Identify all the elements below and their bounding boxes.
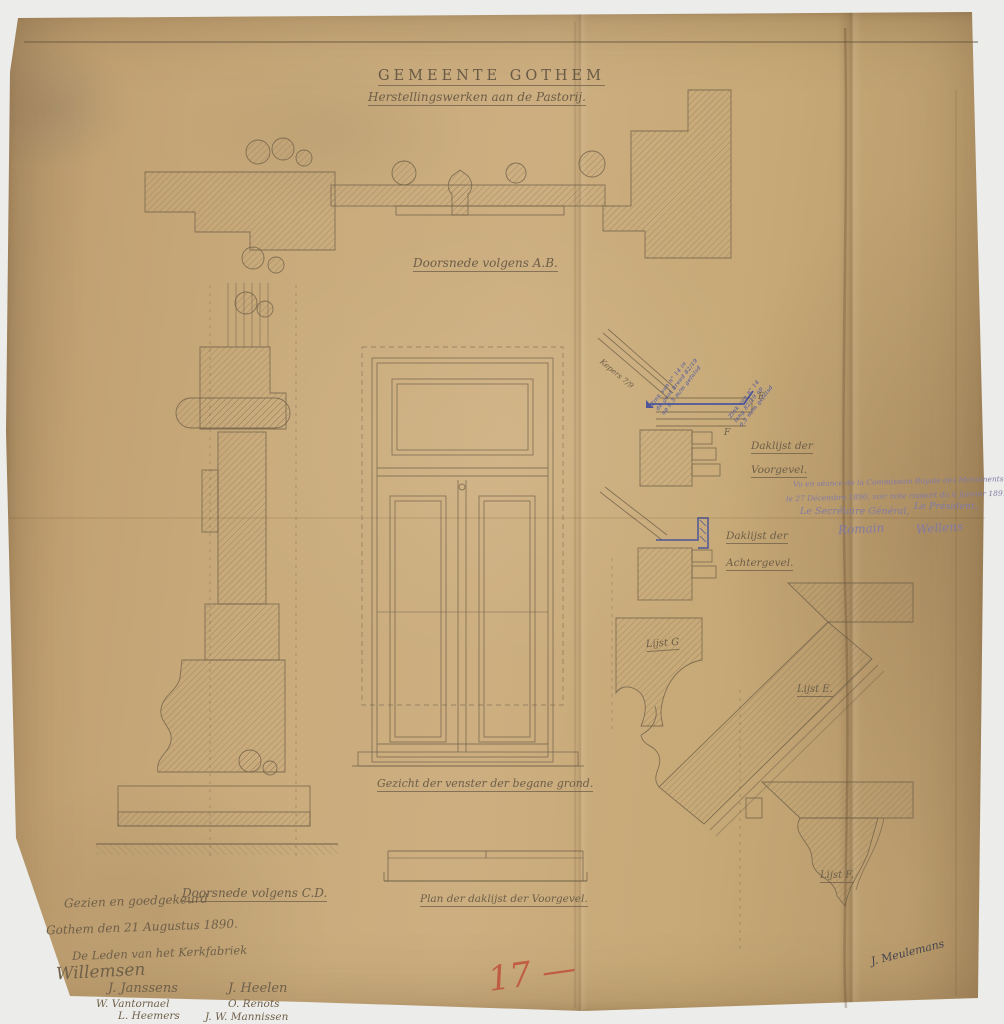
signature-row1-left: J. Janssens (108, 981, 178, 996)
label-cornice-front-2: Voorgevel. (751, 464, 807, 478)
label-cornice-rear-1: Daklijst der (726, 530, 788, 544)
gutter-detail-rear (600, 487, 716, 600)
label-lijst-g: Lijst G (646, 637, 680, 652)
label-cornice-front-1: Daklijst der (751, 440, 813, 454)
signature-row3-left: L. Heemers (118, 1010, 180, 1022)
sheet-subtitle: Herstellingswerken aan de Pastorij. (368, 90, 586, 106)
label-section-ab: Doorsnede volgens A.B. (413, 256, 558, 272)
secretary-signature: Romain (838, 521, 885, 537)
signature-row3-right: J. W. Mannissen (205, 1011, 288, 1023)
label-plan-cornice: Plan der daklijst der Voorgevel. (420, 893, 588, 907)
label-lijst-f: Lijst F. (820, 870, 854, 883)
scanned-drawing-sheet: GEMEENTE GOTHEM Herstellingswerken aan d… (0, 0, 1004, 1024)
signature-row2-right: O. Renots (228, 998, 279, 1010)
section-cd-molding (96, 283, 338, 860)
signature-row1-right: J. Heelen (228, 981, 287, 996)
president-title: Le Président, (914, 501, 978, 512)
gutter-detail-front (598, 329, 752, 486)
plan-cornice-band (384, 851, 587, 881)
label-cornice-rear-2: Achtergevel. (726, 557, 793, 571)
ref-letter-f: F (724, 428, 730, 438)
sheet-title: GEMEENTE GOTHEM (378, 68, 605, 86)
section-ab-cornice (145, 90, 731, 273)
label-lijst-e: Lijst E. (797, 684, 833, 697)
secretary-title: Le Secrétaire Général, (800, 506, 909, 517)
signature-row2-left: W. Vantornael (96, 998, 169, 1010)
label-window-elevation: Gezicht der venster der begane grond. (377, 777, 593, 792)
window-elevation (352, 347, 584, 766)
